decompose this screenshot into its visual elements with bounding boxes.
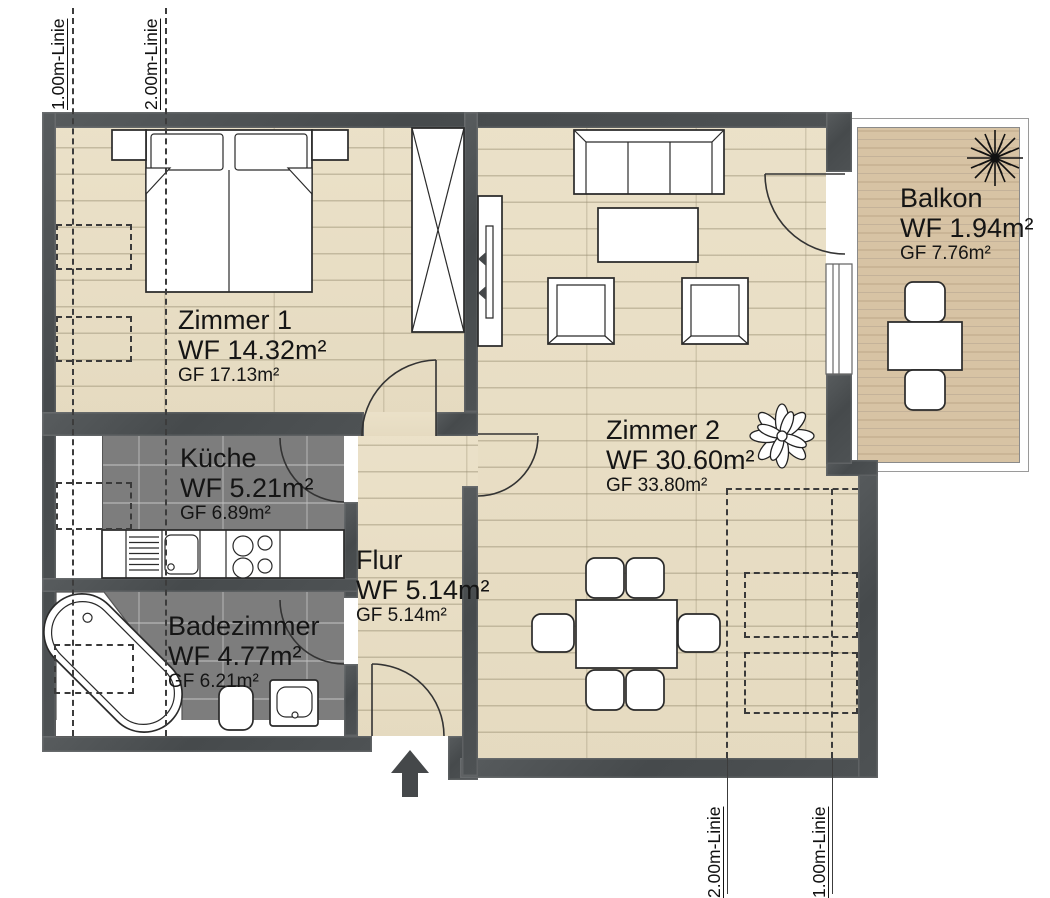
guide-leader-2m-bottom <box>727 758 728 894</box>
room-label-kueche: Küche WF 5.21m² GF 6.89m² <box>180 444 314 525</box>
room-gf-area: GF 33.80m² <box>606 475 755 497</box>
room-label-balkon: Balkon WF 1.94m² GF 7.76m² <box>900 184 1034 265</box>
room-wf-area: WF 5.21m² <box>180 473 314 503</box>
dashed-zone-zimmer1-a <box>56 224 132 270</box>
entrance-arrow-icon <box>391 750 429 797</box>
dashed-zone-kueche <box>56 482 132 530</box>
room-label-flur: Flur WF 5.14m² GF 5.14m² <box>356 546 490 627</box>
wall-bottom-left <box>42 736 372 752</box>
guide-line-2m-bottom <box>726 489 728 758</box>
dashed-zone-zimmer2-b <box>744 652 858 714</box>
wall-top <box>42 112 852 128</box>
room-gf-area: GF 17.13m² <box>178 365 327 387</box>
guide-line-2m-top <box>165 8 167 736</box>
room-name: Zimmer 2 <box>606 416 755 445</box>
room-gf-area: GF 5.14m² <box>356 605 490 627</box>
floor-plan: Zimmer 1 WF 14.32m² GF 17.13m² Küche WF … <box>0 0 1050 898</box>
room-gf-area: GF 6.89m² <box>180 503 314 525</box>
room-label-badezimmer: Badezimmer WF 4.77m² GF 6.21m² <box>168 612 320 693</box>
wall-right-lower <box>858 460 878 778</box>
guide-label-2m-bottom: 2.00m-Linie <box>702 794 726 898</box>
guide-leader-1m-bottom <box>832 758 833 894</box>
wall-zimmer2-bottom <box>460 758 878 778</box>
room-name: Balkon <box>900 184 1034 213</box>
guide-label-1m-bottom: 1.00m-Linie <box>807 794 831 898</box>
entrance-door-opening <box>372 736 448 752</box>
zimmer1-door-threshold <box>364 412 436 436</box>
room-name: Badezimmer <box>168 612 320 641</box>
dashed-zone-zimmer2-a <box>744 572 858 638</box>
guide-label-1m-top: 1.00m-Linie <box>46 6 70 110</box>
room-wf-area: WF 14.32m² <box>178 335 327 365</box>
room-name: Flur <box>356 546 490 575</box>
wall-flur-west-b <box>344 664 358 736</box>
room-wf-area: WF 5.14m² <box>356 575 490 605</box>
guide-label-2m-top: 2.00m-Linie <box>139 6 163 110</box>
wall-kueche-bad <box>42 578 358 592</box>
wall-zimmer1-flur-stub <box>436 412 478 436</box>
balcony-door-opening <box>826 172 852 264</box>
wall-zimmer1-kueche <box>42 412 364 436</box>
dashed-zone-zimmer1-b <box>56 316 132 362</box>
room-wf-area: WF 1.94m² <box>900 213 1034 243</box>
room-label-zimmer1: Zimmer 1 WF 14.32m² GF 17.13m² <box>178 306 327 387</box>
balkon-deck <box>857 127 1020 463</box>
room-wf-area: WF 4.77m² <box>168 641 320 671</box>
dashed-zone-bad <box>54 644 134 694</box>
room-gf-area: GF 6.21m² <box>168 671 320 693</box>
room-gf-area: GF 7.76m² <box>900 243 1034 265</box>
room-label-zimmer2: Zimmer 2 WF 30.60m² GF 33.80m² <box>606 416 755 497</box>
wall-divider-zimmer1-zimmer2 <box>464 112 478 412</box>
room-name: Zimmer 1 <box>178 306 327 335</box>
wall-flur-zimmer2 <box>462 486 478 776</box>
wall-right-below-window <box>826 374 852 464</box>
room-wf-area: WF 30.60m² <box>606 445 755 475</box>
wall-right-top-corner <box>826 112 852 172</box>
guide-line-1m-top <box>72 8 74 736</box>
room-name: Küche <box>180 444 314 473</box>
